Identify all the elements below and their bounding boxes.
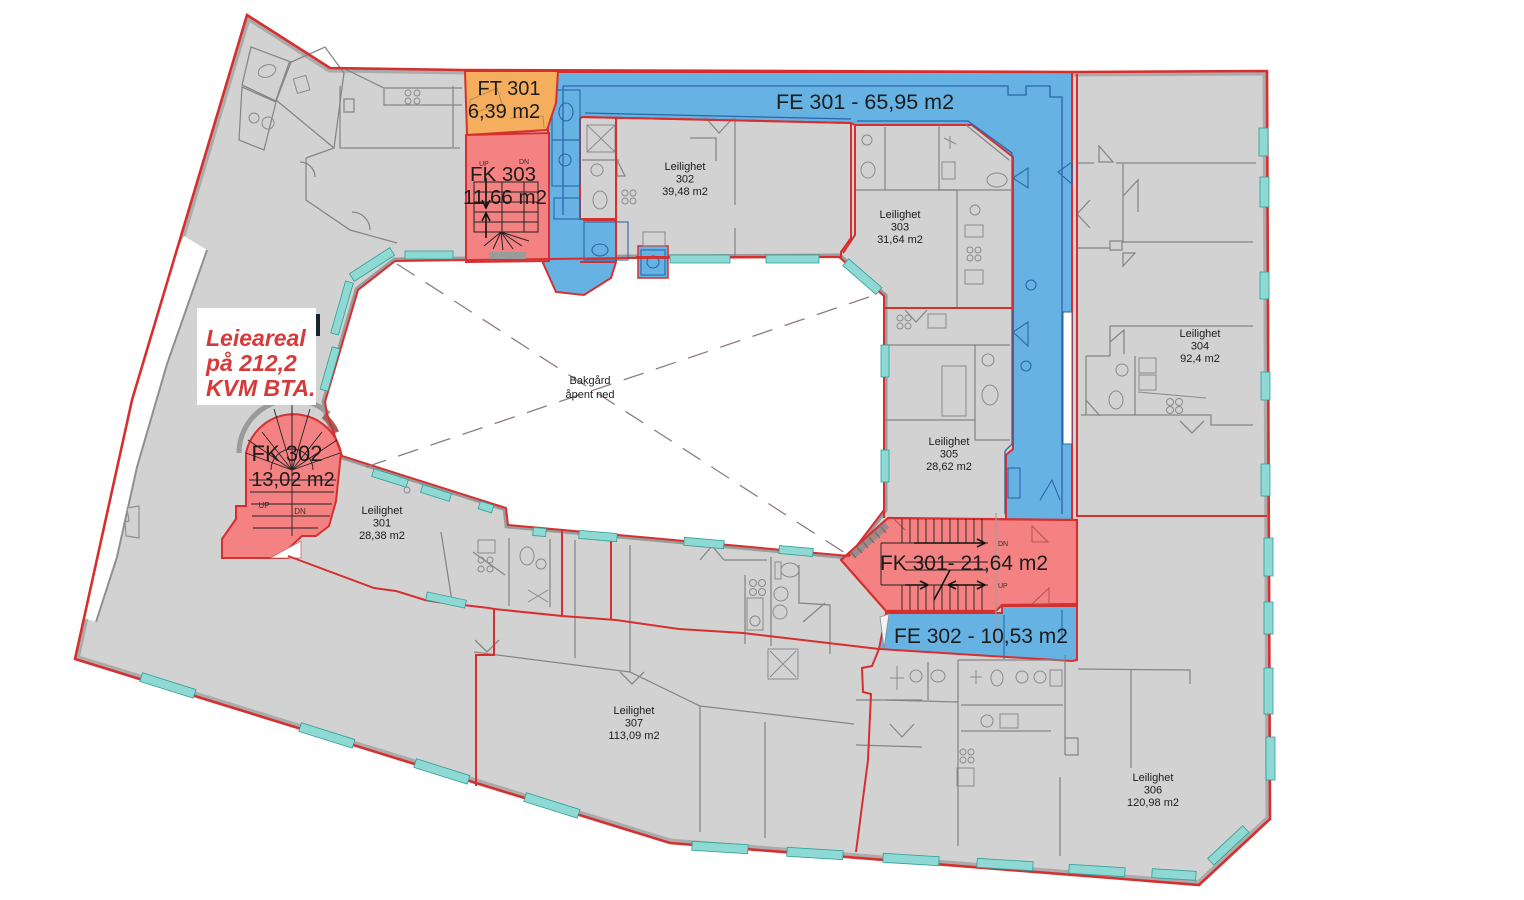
svg-text:UP: UP	[998, 583, 1008, 590]
svg-text:113,09 m2: 113,09 m2	[608, 730, 659, 742]
svg-text:306: 306	[1144, 785, 1162, 797]
svg-text:Leilighet: Leilighet	[1133, 772, 1174, 784]
svg-text:DN: DN	[998, 541, 1008, 548]
svg-text:FK 303: FK 303	[470, 163, 536, 186]
svg-text:28,62 m2: 28,62 m2	[926, 461, 972, 473]
svg-text:120,98 m2: 120,98 m2	[1127, 797, 1179, 809]
svg-text:Leilighet: Leilighet	[665, 161, 706, 173]
svg-text:307: 307	[625, 718, 643, 730]
svg-text:FK 301- 21,64 m2: FK 301- 21,64 m2	[880, 552, 1048, 575]
svg-text:301: 301	[373, 518, 391, 530]
svg-text:6,39 m2: 6,39 m2	[468, 101, 540, 123]
svg-text:KVM BTA.: KVM BTA.	[206, 375, 315, 401]
svg-text:31,64 m2: 31,64 m2	[877, 234, 923, 246]
svg-text:92,4 m2: 92,4 m2	[1180, 353, 1220, 365]
svg-text:på 212,2: på 212,2	[205, 350, 297, 376]
svg-text:DN: DN	[294, 507, 306, 516]
svg-text:11,66 m2: 11,66 m2	[463, 186, 547, 209]
svg-text:Leieareal: Leieareal	[206, 325, 306, 351]
svg-text:Leilighet: Leilighet	[880, 209, 921, 221]
svg-text:FK 302: FK 302	[252, 441, 323, 466]
svg-text:28,38 m2: 28,38 m2	[359, 530, 405, 542]
svg-text:Leilighet: Leilighet	[929, 436, 970, 448]
svg-text:13,02 m2: 13,02 m2	[251, 469, 334, 491]
svg-text:39,48 m2: 39,48 m2	[662, 186, 708, 198]
svg-text:FE 301 - 65,95 m2: FE 301 - 65,95 m2	[776, 90, 954, 114]
svg-text:FT 301: FT 301	[478, 78, 541, 100]
svg-text:303: 303	[891, 222, 909, 234]
svg-text:Leilighet: Leilighet	[614, 705, 655, 717]
svg-text:FE 302 - 10,53 m2: FE 302 - 10,53 m2	[894, 625, 1068, 648]
svg-text:305: 305	[940, 449, 958, 461]
svg-text:Bakgård: Bakgård	[570, 375, 611, 387]
svg-text:Leilighet: Leilighet	[1180, 328, 1221, 340]
svg-text:Leilighet: Leilighet	[362, 505, 403, 517]
svg-text:UP: UP	[258, 501, 269, 510]
svg-text:304: 304	[1191, 341, 1209, 353]
svg-text:åpent ned: åpent ned	[566, 389, 615, 401]
svg-text:302: 302	[676, 174, 694, 186]
